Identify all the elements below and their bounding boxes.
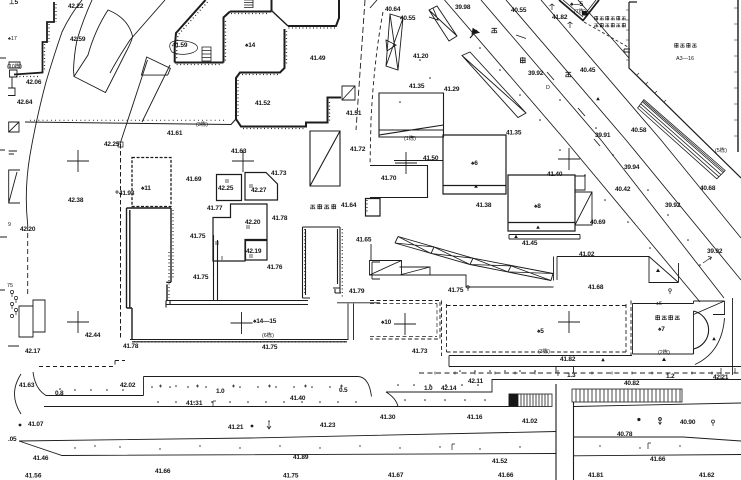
svg-text:♠—5: ♠—5 bbox=[570, 1, 584, 8]
svg-text:41.82: 41.82 bbox=[552, 14, 568, 21]
svg-text:42.38: 42.38 bbox=[68, 197, 84, 204]
svg-text:42.21: 42.21 bbox=[713, 374, 729, 381]
svg-text:♠14—15: ♠14—15 bbox=[253, 318, 277, 325]
svg-text:♠7: ♠7 bbox=[658, 326, 665, 333]
svg-text:41.75: 41.75 bbox=[193, 274, 209, 281]
svg-text:39.91: 39.91 bbox=[595, 132, 611, 139]
svg-text:(6栋): (6栋) bbox=[262, 331, 274, 339]
svg-text:42.64: 42.64 bbox=[17, 99, 33, 106]
svg-text:1.2: 1.2 bbox=[666, 373, 675, 380]
svg-text:41.77: 41.77 bbox=[207, 205, 223, 212]
svg-text:41.93: 41.93 bbox=[119, 190, 135, 197]
svg-text:41.68: 41.68 bbox=[588, 284, 604, 291]
svg-text:40.68: 40.68 bbox=[700, 185, 716, 192]
svg-text:39.92: 39.92 bbox=[665, 202, 681, 209]
svg-text:40.42: 40.42 bbox=[615, 186, 631, 193]
svg-text:41.76: 41.76 bbox=[267, 264, 283, 271]
svg-text:41.82: 41.82 bbox=[560, 356, 576, 363]
svg-text:40.64: 40.64 bbox=[385, 6, 401, 13]
svg-text:41.89: 41.89 bbox=[293, 454, 309, 461]
svg-text:41.56: 41.56 bbox=[25, 473, 42, 480]
svg-text:40.69: 40.69 bbox=[590, 219, 606, 226]
svg-text:41.63: 41.63 bbox=[231, 148, 247, 155]
svg-text:41.21: 41.21 bbox=[228, 424, 244, 431]
svg-text:41.46: 41.46 bbox=[33, 455, 49, 462]
svg-text:41.59: 41.59 bbox=[172, 42, 188, 49]
svg-text:42.25: 42.25 bbox=[218, 185, 234, 192]
svg-text:40.78: 40.78 bbox=[617, 431, 633, 438]
svg-text:41.20: 41.20 bbox=[413, 53, 429, 60]
svg-text:41.69: 41.69 bbox=[186, 176, 202, 183]
svg-text:41.07: 41.07 bbox=[28, 421, 44, 428]
svg-text:42.11: 42.11 bbox=[468, 378, 483, 385]
svg-text:41.52: 41.52 bbox=[492, 458, 508, 465]
svg-text:42.17: 42.17 bbox=[25, 348, 41, 355]
svg-text:♠8: ♠8 bbox=[534, 203, 541, 210]
svg-text:40.90: 40.90 bbox=[680, 419, 696, 426]
svg-text:♠14: ♠14 bbox=[245, 42, 256, 49]
svg-text:41.67: 41.67 bbox=[388, 472, 404, 479]
svg-text:41.35: 41.35 bbox=[506, 130, 522, 137]
svg-text:42.19: 42.19 bbox=[246, 248, 262, 255]
svg-text:40.58: 40.58 bbox=[631, 127, 647, 134]
svg-text:1.3: 1.3 bbox=[567, 372, 576, 379]
svg-text:41.78: 41.78 bbox=[272, 215, 288, 222]
svg-text:42.59: 42.59 bbox=[70, 36, 86, 43]
svg-text:41.75: 41.75 bbox=[190, 233, 206, 240]
svg-text:42.14: 42.14 bbox=[441, 385, 457, 392]
svg-text:41.66: 41.66 bbox=[498, 472, 514, 479]
svg-text:41.40: 41.40 bbox=[290, 395, 306, 402]
svg-text:42.27: 42.27 bbox=[251, 187, 267, 194]
svg-text:41.75: 41.75 bbox=[448, 287, 464, 294]
svg-text:41.31: 41.31 bbox=[186, 400, 203, 407]
svg-text:41.64: 41.64 bbox=[341, 202, 357, 209]
svg-text:♠6: ♠6 bbox=[471, 160, 478, 167]
svg-text:41.30: 41.30 bbox=[380, 414, 396, 421]
svg-text:39.92: 39.92 bbox=[707, 248, 723, 255]
svg-text:40.82: 40.82 bbox=[624, 380, 640, 387]
svg-text:41.66: 41.66 bbox=[155, 468, 171, 475]
svg-text:41.50: 41.50 bbox=[423, 155, 439, 162]
svg-text:41.73: 41.73 bbox=[412, 348, 428, 355]
svg-text:41.75: 41.75 bbox=[262, 344, 278, 351]
svg-text:75: 75 bbox=[7, 283, 13, 289]
svg-text:(10栋): (10栋) bbox=[7, 62, 22, 70]
svg-text:42.20: 42.20 bbox=[245, 219, 261, 226]
svg-text:41.81: 41.81 bbox=[588, 472, 604, 479]
svg-text:41.66: 41.66 bbox=[650, 456, 666, 463]
svg-text:42.06: 42.06 bbox=[26, 79, 42, 86]
svg-text:0.5: 0.5 bbox=[339, 387, 348, 394]
svg-text:(5栋): (5栋) bbox=[715, 146, 727, 154]
svg-text:41.38: 41.38 bbox=[476, 202, 492, 209]
svg-text:41.51: 41.51 bbox=[346, 110, 362, 117]
svg-text:40.55: 40.55 bbox=[400, 15, 416, 22]
svg-text:41.40: 41.40 bbox=[547, 171, 563, 178]
svg-text:40.55: 40.55 bbox=[511, 7, 527, 14]
svg-text:41.79: 41.79 bbox=[349, 288, 365, 295]
svg-text:42.22: 42.22 bbox=[68, 3, 84, 10]
svg-text:(3栋): (3栋) bbox=[196, 120, 208, 128]
svg-text:9: 9 bbox=[8, 222, 11, 228]
svg-text:41.65: 41.65 bbox=[356, 237, 372, 244]
svg-text:39.92: 39.92 bbox=[528, 70, 544, 77]
svg-text:(1栋): (1栋) bbox=[404, 134, 416, 142]
svg-text:39.94: 39.94 bbox=[624, 164, 640, 171]
svg-text:D: D bbox=[546, 85, 550, 91]
svg-text:41.61: 41.61 bbox=[167, 130, 183, 137]
svg-text:39.98: 39.98 bbox=[455, 4, 471, 11]
svg-text:41.35: 41.35 bbox=[409, 83, 425, 90]
svg-text:41.75: 41.75 bbox=[283, 473, 299, 480]
svg-text:(2栋): (2栋) bbox=[658, 348, 670, 356]
svg-text:A3—16: A3—16 bbox=[676, 56, 694, 62]
svg-text:♠6: ♠6 bbox=[656, 301, 662, 307]
svg-text:41.78: 41.78 bbox=[123, 343, 139, 350]
svg-text:41.62: 41.62 bbox=[699, 472, 715, 479]
svg-text:41.16: 41.16 bbox=[467, 414, 483, 421]
svg-text:♠17: ♠17 bbox=[8, 36, 17, 42]
svg-text:41.02: 41.02 bbox=[579, 251, 595, 258]
svg-text:42.44: 42.44 bbox=[85, 332, 101, 339]
svg-text:41.23: 41.23 bbox=[320, 422, 336, 429]
svg-text:41.49: 41.49 bbox=[310, 55, 326, 62]
svg-text:41.45: 41.45 bbox=[522, 240, 538, 247]
svg-text:41.73: 41.73 bbox=[271, 170, 287, 177]
svg-text:40.45: 40.45 bbox=[580, 67, 596, 74]
svg-text:0.8: 0.8 bbox=[55, 390, 64, 397]
svg-text:41.02: 41.02 bbox=[522, 418, 538, 425]
svg-text:♠10: ♠10 bbox=[381, 319, 392, 326]
svg-text:(7栋): (7栋) bbox=[574, 7, 586, 15]
svg-text:1.0: 1.0 bbox=[424, 385, 433, 392]
svg-text:⊥5: ⊥5 bbox=[9, 0, 18, 6]
svg-text:(3栋): (3栋) bbox=[538, 347, 550, 355]
svg-text:41.70: 41.70 bbox=[381, 175, 397, 182]
svg-text:41.29: 41.29 bbox=[444, 86, 460, 93]
svg-text:.05: .05 bbox=[8, 436, 17, 443]
svg-text:1.0: 1.0 bbox=[216, 388, 225, 395]
svg-text:41.52: 41.52 bbox=[255, 100, 271, 107]
svg-text:♠11: ♠11 bbox=[141, 185, 151, 192]
svg-text:42.02: 42.02 bbox=[120, 382, 136, 389]
svg-text:♠5: ♠5 bbox=[537, 328, 544, 335]
svg-text:42.20: 42.20 bbox=[20, 226, 36, 233]
svg-text:42.25: 42.25 bbox=[104, 141, 120, 148]
svg-text:41.72: 41.72 bbox=[350, 146, 366, 153]
svg-text:41.63: 41.63 bbox=[19, 382, 35, 389]
